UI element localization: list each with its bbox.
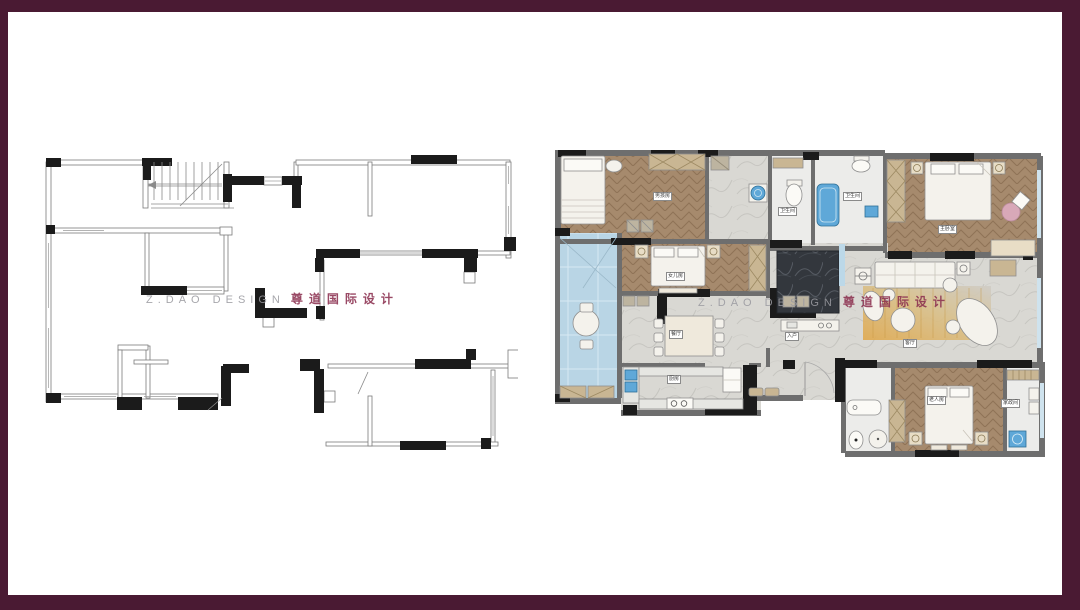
door-swings (208, 372, 368, 410)
staircase (148, 162, 234, 208)
room-label-dining-room: 餐厅 (669, 330, 683, 339)
room-label-kitchen: 厨房 (667, 375, 681, 384)
room-label-entry: 入户 (785, 332, 799, 341)
thin-walls (46, 160, 518, 446)
canvas: Z.DAO DESIGN尊道国际设计 (8, 12, 1062, 595)
left-plan-drawing (38, 148, 518, 463)
room-label-daughters-room: 女儿房 (666, 272, 685, 281)
furnished-floor-plan: 男孩房 卫生间 卫生间 主卧室 女儿房 餐厅 厨房 入户 客厅 老人房 家政间 … (553, 148, 1048, 463)
structural-floor-plan: Z.DAO DESIGN尊道国际设计 (38, 148, 518, 463)
right-plan-drawing (553, 148, 1048, 463)
room-label-utility-room: 家政间 (1001, 399, 1020, 408)
black-walls (46, 155, 516, 450)
room-label-boys-room: 男孩房 (653, 192, 672, 201)
room-label-bathroom-b: 卫生间 (843, 192, 862, 201)
room-label-living-room: 客厅 (903, 339, 917, 348)
room-label-bathroom-a: 卫生间 (778, 207, 797, 216)
room-label-elders-room: 老人房 (927, 396, 946, 405)
room-label-master-bedroom: 主卧室 (938, 225, 957, 234)
